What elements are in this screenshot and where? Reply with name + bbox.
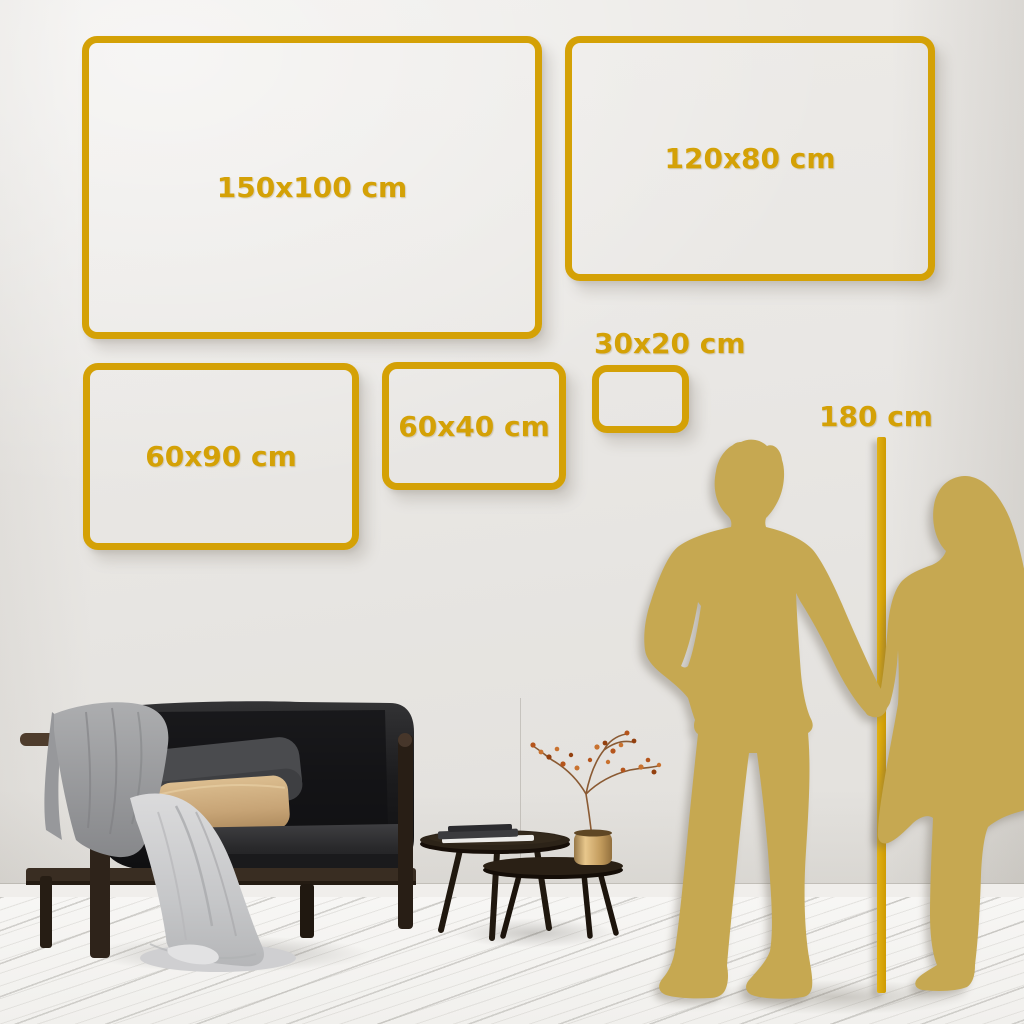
sofa-leg-mid: [300, 884, 314, 938]
coffee-table-large: [420, 830, 570, 938]
brass-vase: [574, 830, 612, 866]
room-scene: [0, 0, 1024, 1024]
decor-berries: [530, 731, 661, 775]
sofa-post-right: [398, 735, 413, 929]
sofa-leg-rear: [40, 876, 52, 948]
coffee-table-small: [483, 857, 623, 936]
man-silhouette: [644, 440, 887, 999]
woman-silhouette: [866, 476, 1024, 991]
size-guide-poster: 150x100 cm120x80 cm60x90 cm60x40 cm30x20…: [0, 0, 1024, 1024]
sofa: [20, 701, 416, 972]
sofa-dowel-knob: [398, 733, 412, 747]
decor-branch: [533, 734, 658, 838]
